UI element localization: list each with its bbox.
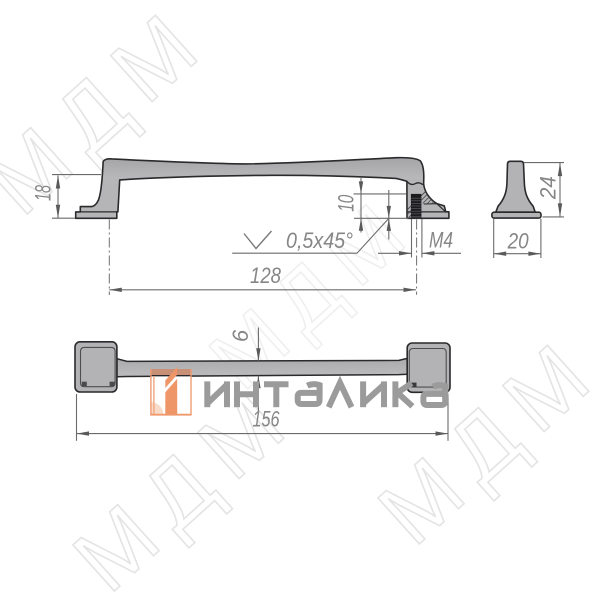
svg-text:128: 128	[250, 263, 282, 288]
svg-text:0,5x45°: 0,5x45°	[286, 228, 353, 253]
svg-text:20: 20	[507, 229, 530, 254]
svg-text:156: 156	[253, 406, 281, 431]
svg-text:6: 6	[228, 329, 253, 342]
svg-text:10: 10	[333, 194, 358, 212]
svg-text:M4: M4	[429, 228, 453, 253]
svg-text:18: 18	[30, 185, 55, 201]
svg-text:МДМ: МДМ	[360, 316, 600, 564]
svg-text:24: 24	[536, 176, 561, 200]
